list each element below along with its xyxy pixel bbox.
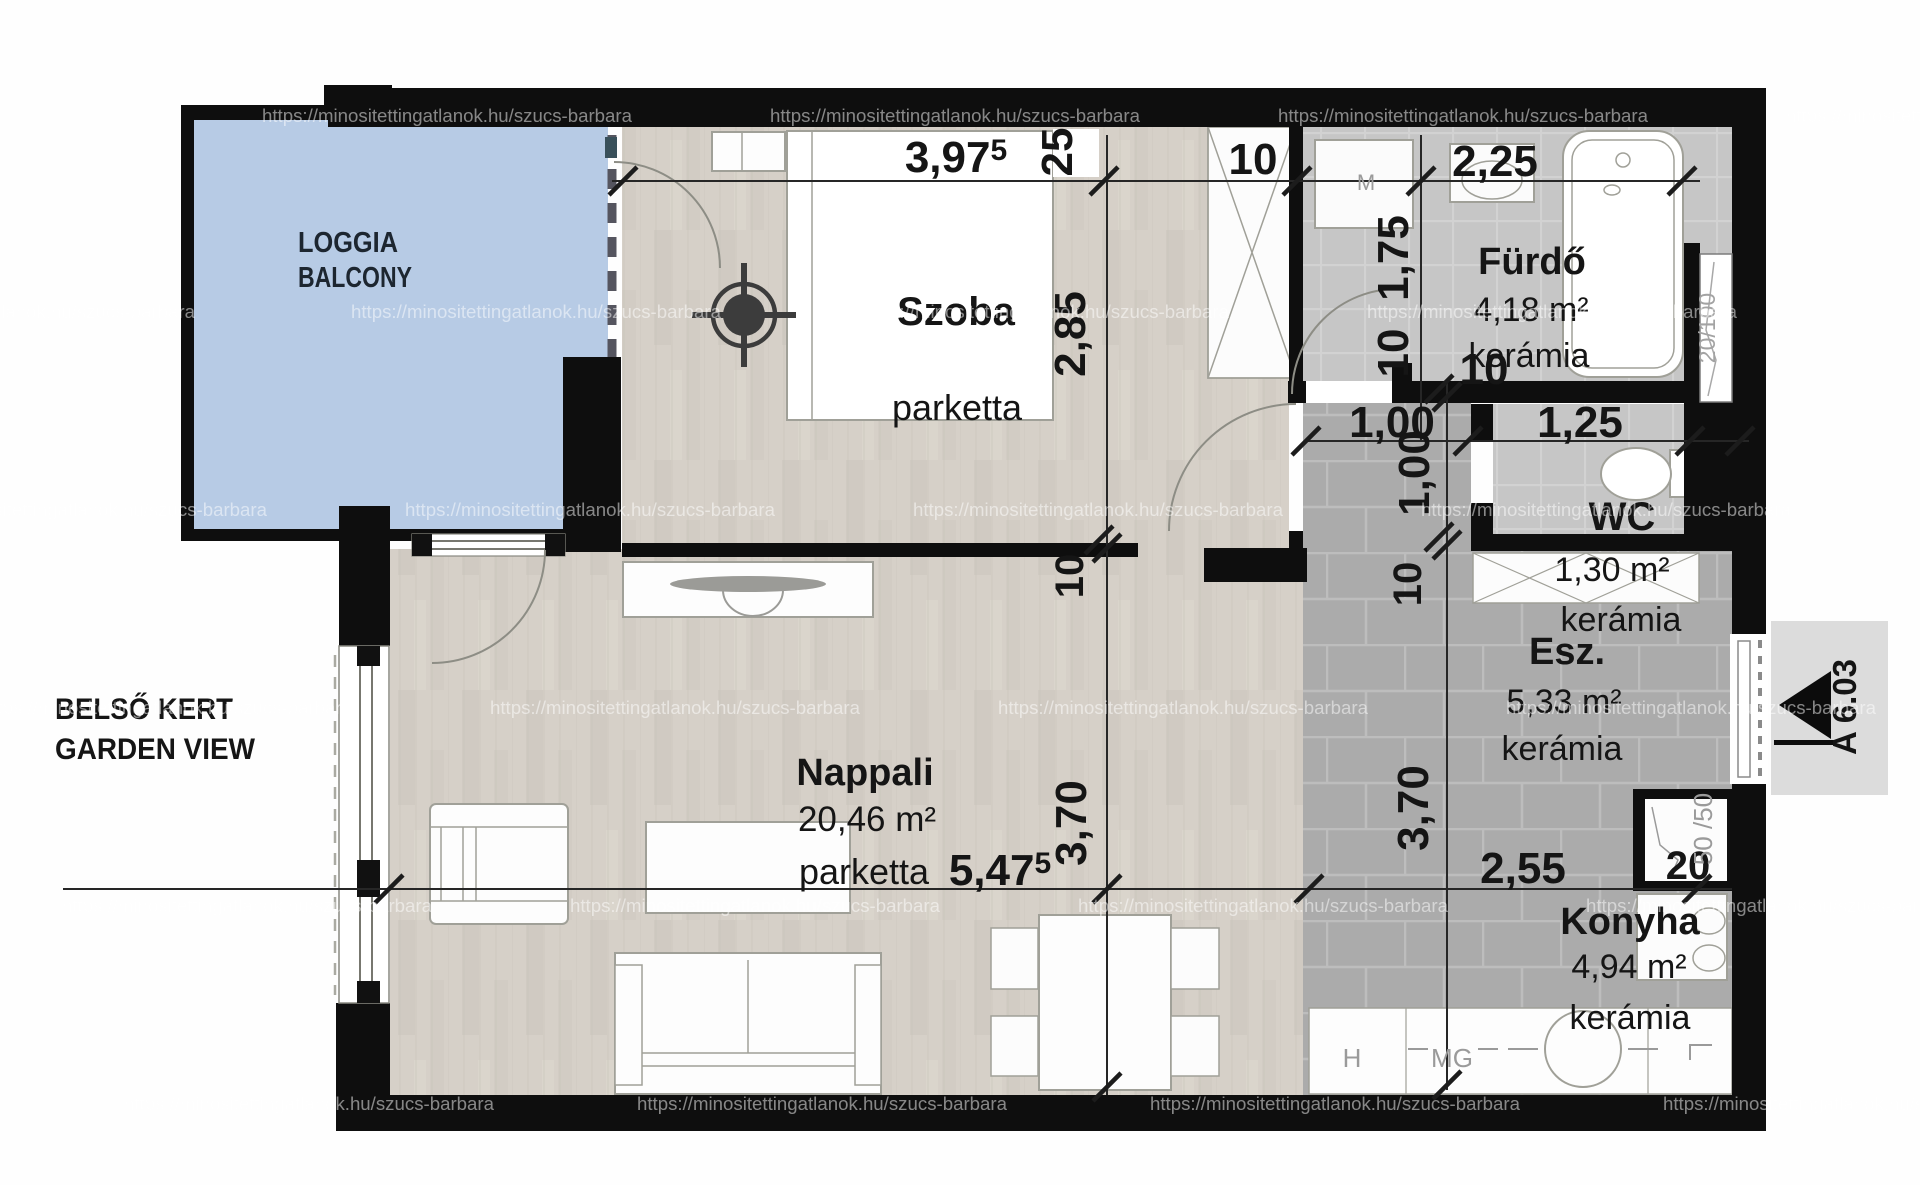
svg-text:https://minositettingatlanok.h: https://minositettingatlanok.hu/szucs-ba…: [913, 500, 1284, 520]
svg-text:GARDEN VIEW: GARDEN VIEW: [55, 733, 256, 766]
svg-text:https://minositettingatlanok.h: https://minositettingatlanok.hu/szucs-ba…: [1786, 106, 1920, 126]
svg-text:https://minositettingatlanok.h: https://minositettingatlanok.hu/szucs-ba…: [0, 500, 268, 520]
svg-text:https://minositettingatlanok.h: https://minositettingatlanok.hu/szucs-ba…: [1421, 500, 1792, 520]
svg-text:2,55: 2,55: [1480, 844, 1566, 893]
svg-text:10: 10: [1048, 554, 1092, 599]
svg-text:1,30 m²: 1,30 m²: [1554, 551, 1669, 589]
svg-text:2,25: 2,25: [1452, 137, 1538, 186]
svg-text:https://minositettingatlanok.h: https://minositettingatlanok.hu/szucs-ba…: [637, 1094, 1008, 1114]
svg-text:10: 10: [1369, 329, 1418, 378]
svg-text:https://minositettingatlanok.h: https://minositettingatlanok.hu/szucs-ba…: [0, 698, 353, 718]
svg-text:https://minositettingatlanok.h: https://minositettingatlanok.hu/szucs-ba…: [1278, 106, 1649, 126]
svg-text:https://minositettingatlanok.h: https://minositettingatlanok.hu/szucs-ba…: [570, 896, 941, 916]
svg-text:Nappali: Nappali: [796, 752, 933, 794]
svg-text:https://minositettingatlanok.h: https://minositettingatlanok.hu/szucs-ba…: [859, 302, 1230, 322]
svg-text:Fürdő: Fürdő: [1478, 241, 1586, 283]
svg-text:3,70: 3,70: [1389, 765, 1438, 851]
svg-text:BALCONY: BALCONY: [298, 262, 412, 294]
svg-text:50 /50: 50 /50: [1688, 793, 1718, 865]
svg-text:https://minositettingatlanok.h: https://minositettingatlanok.hu/szucs-ba…: [1150, 1094, 1521, 1114]
svg-text:https://minositettingatlanok.h: https://minositettingatlanok.hu/szucs-ba…: [1367, 302, 1738, 322]
svg-text:parketta: parketta: [799, 851, 930, 892]
svg-text:25: 25: [1033, 128, 1082, 177]
svg-text:https://minositettingatlanok.h: https://minositettingatlanok.hu/szucs-ba…: [351, 302, 722, 322]
svg-text:https://minositettingatlanok.h: https://minositettingatlanok.hu/szucs-ba…: [490, 698, 861, 718]
svg-text:MG: MG: [1431, 1043, 1473, 1073]
svg-text:https://minositettingatlanok.h: https://minositettingatlanok.hu/szucs-ba…: [998, 698, 1369, 718]
svg-text:4,94 m²: 4,94 m²: [1571, 948, 1686, 986]
svg-text:https://minositettingatlanok.h: https://minositettingatlanok.hu/szucs-ba…: [262, 106, 633, 126]
svg-text:kerámia: kerámia: [1502, 730, 1623, 768]
svg-text:https://minositettingatlanok.h: https://minositettingatlanok.hu/szucs-ba…: [1506, 698, 1877, 718]
svg-text:20,46 m²: 20,46 m²: [798, 800, 936, 839]
svg-text:1,75: 1,75: [1369, 215, 1418, 301]
svg-text:H: H: [1343, 1043, 1362, 1073]
svg-text:https://minositettingatlanok.h: https://minositettingatlanok.hu/szucs-ba…: [770, 106, 1141, 126]
svg-text:Esz.: Esz.: [1529, 631, 1605, 673]
svg-text:https://minositettingatlanok.h: https://minositettingatlanok.hu/szucs-ba…: [1586, 896, 1920, 916]
svg-text:1,25: 1,25: [1537, 398, 1623, 447]
svg-text:LOGGIA: LOGGIA: [298, 227, 398, 259]
svg-text:https://minositettingatlanok.h: https://minositettingatlanok.hu/szucs-ba…: [1078, 896, 1449, 916]
svg-text:10: 10: [1460, 345, 1509, 394]
svg-text:https://minositettingatlanok.h: https://minositettingatlanok.hu/szucs-ba…: [124, 1094, 495, 1114]
svg-text:https://minositettingatlanok.h: https://minositettingatlanok.hu/szucs-ba…: [405, 500, 776, 520]
svg-text:10: 10: [1229, 135, 1278, 184]
svg-text:kerámia: kerámia: [1570, 999, 1691, 1037]
svg-text:parketta: parketta: [892, 387, 1023, 428]
svg-text:https://minositettingatlanok.h: https://minositettingatlanok.hu/szucs-ba…: [0, 302, 196, 322]
svg-text:https://minositettingatlanok.h: https://minositettingatlanok.hu/szucs-ba…: [62, 896, 433, 916]
svg-text:M: M: [1357, 170, 1375, 195]
svg-text:10: 10: [1386, 562, 1430, 607]
svg-text:3,70: 3,70: [1047, 780, 1096, 866]
svg-text:https://minositettingatlanok.h: https://minositettingatlanok.hu/szucs-ba…: [1663, 1094, 1920, 1114]
